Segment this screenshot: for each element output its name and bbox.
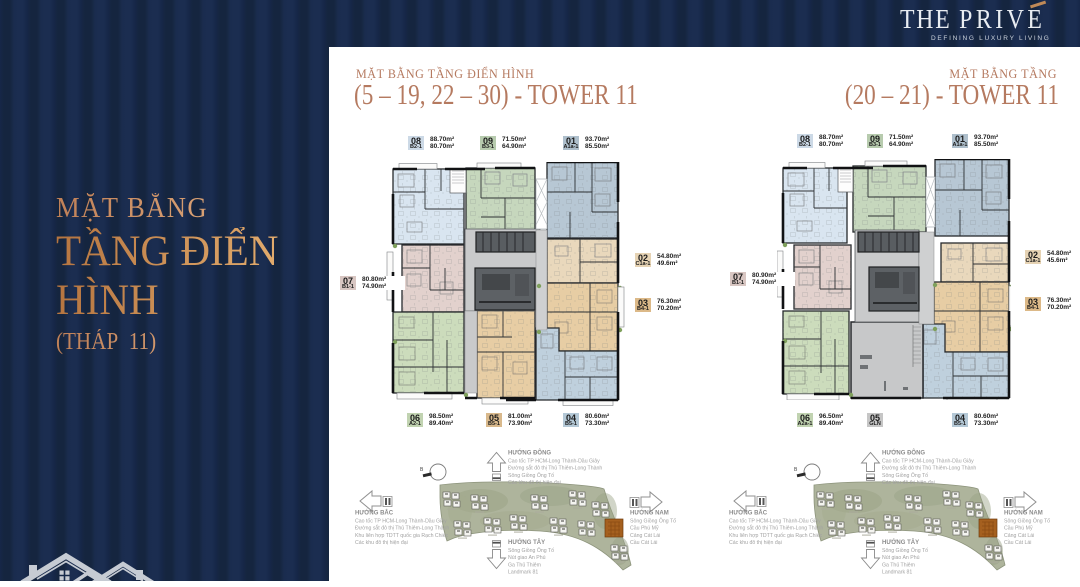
svg-text:Sông Giồng Ông Tố: Sông Giồng Ông Tố <box>508 547 554 554</box>
svg-text:HƯỚNG BẮC: HƯỚNG BẮC <box>729 509 768 517</box>
svg-text:Ga Thủ Thiêm: Ga Thủ Thiêm <box>882 561 915 568</box>
svg-text:Cảng Cát Lái: Cảng Cát Lái <box>1004 533 1034 539</box>
svg-text:Sông Giồng Ông Tố: Sông Giồng Ông Tố <box>882 547 928 554</box>
svg-text:Sông Giồng Ông Tố: Sông Giồng Ông Tố <box>1004 518 1050 525</box>
svg-text:Cao tốc TP HCM-Long Thành-Dầu: Cao tốc TP HCM-Long Thành-Dầu Giây <box>882 459 974 465</box>
svg-text:Landmark 81: Landmark 81 <box>882 570 912 576</box>
svg-text:Ga Thủ Thiêm: Ga Thủ Thiêm <box>508 561 541 568</box>
svg-text:Các khu đô thị hiện đại: Các khu đô thị hiện đại <box>882 480 935 486</box>
svg-text:Nút giao An Phú: Nút giao An Phú <box>508 555 546 561</box>
svg-text:Cầu Phú Mỹ: Cầu Phú Mỹ <box>630 526 659 532</box>
svg-text:Cao tốc TP HCM-Long Thành-Dầu: Cao tốc TP HCM-Long Thành-Dầu Giây <box>729 519 821 525</box>
svg-text:Khu liên hợp TDTT quốc gia Rạc: Khu liên hợp TDTT quốc gia Rạch Chiếc <box>355 533 449 539</box>
svg-text:Sông Giồng Ông Tố: Sông Giồng Ông Tố <box>630 518 676 525</box>
svg-text:Cầu Cát Lái: Cầu Cát Lái <box>1004 540 1031 546</box>
svg-text:Các khu đô thị hiện đại: Các khu đô thị hiện đại <box>355 540 408 546</box>
svg-text:Đường sắt đô thị Thủ Thiêm-Lon: Đường sắt đô thị Thủ Thiêm-Long Thành <box>508 465 602 472</box>
svg-text:HƯỚNG ĐÔNG: HƯỚNG ĐÔNG <box>882 449 925 457</box>
svg-text:Cầu Cát Lái: Cầu Cát Lái <box>630 540 657 546</box>
svg-text:Đường sắt đô thị Thủ Thiêm-Lon: Đường sắt đô thị Thủ Thiêm-Long Thành <box>882 465 976 472</box>
svg-text:HƯỚNG TÂY: HƯỚNG TÂY <box>508 538 545 546</box>
svg-text:Cao tốc TP HCM-Long Thành-Dầu: Cao tốc TP HCM-Long Thành-Dầu Giây <box>355 519 447 525</box>
svg-text:HƯỚNG TÂY: HƯỚNG TÂY <box>882 538 919 546</box>
svg-text:Cảng Cát Lái: Cảng Cát Lái <box>630 533 660 539</box>
svg-text:Cầu Phú Mỹ: Cầu Phú Mỹ <box>1004 526 1033 532</box>
svg-text:Các khu đô thị hiện đại: Các khu đô thị hiện đại <box>508 480 561 486</box>
svg-text:Đường sắt đô thị Thủ Thiêm-Lon: Đường sắt đô thị Thủ Thiêm-Long Thành <box>729 525 823 532</box>
svg-text:Nút giao An Phú: Nút giao An Phú <box>882 555 920 561</box>
svg-text:HƯỚNG NAM: HƯỚNG NAM <box>1004 509 1043 517</box>
svg-text:Các khu đô thị hiện đại: Các khu đô thị hiện đại <box>729 540 782 546</box>
svg-text:HƯỚNG NAM: HƯỚNG NAM <box>630 509 669 517</box>
svg-text:HƯỚNG BẮC: HƯỚNG BẮC <box>355 509 394 517</box>
svg-text:B: B <box>420 467 424 473</box>
svg-text:B: B <box>794 467 798 473</box>
svg-text:Cao tốc TP HCM-Long Thành-Dầu: Cao tốc TP HCM-Long Thành-Dầu Giây <box>508 459 600 465</box>
svg-text:Landmark 81: Landmark 81 <box>508 570 538 576</box>
svg-text:Khu liên hợp TDTT quốc gia Rạc: Khu liên hợp TDTT quốc gia Rạch Chiếc <box>729 533 823 539</box>
svg-text:Đường sắt đô thị Thủ Thiêm-Lon: Đường sắt đô thị Thủ Thiêm-Long Thành <box>355 525 449 532</box>
svg-text:Sông Giồng Ông Tố: Sông Giồng Ông Tố <box>882 472 928 479</box>
svg-text:Sông Giồng Ông Tố: Sông Giồng Ông Tố <box>508 472 554 479</box>
svg-text:HƯỚNG ĐÔNG: HƯỚNG ĐÔNG <box>508 449 551 457</box>
